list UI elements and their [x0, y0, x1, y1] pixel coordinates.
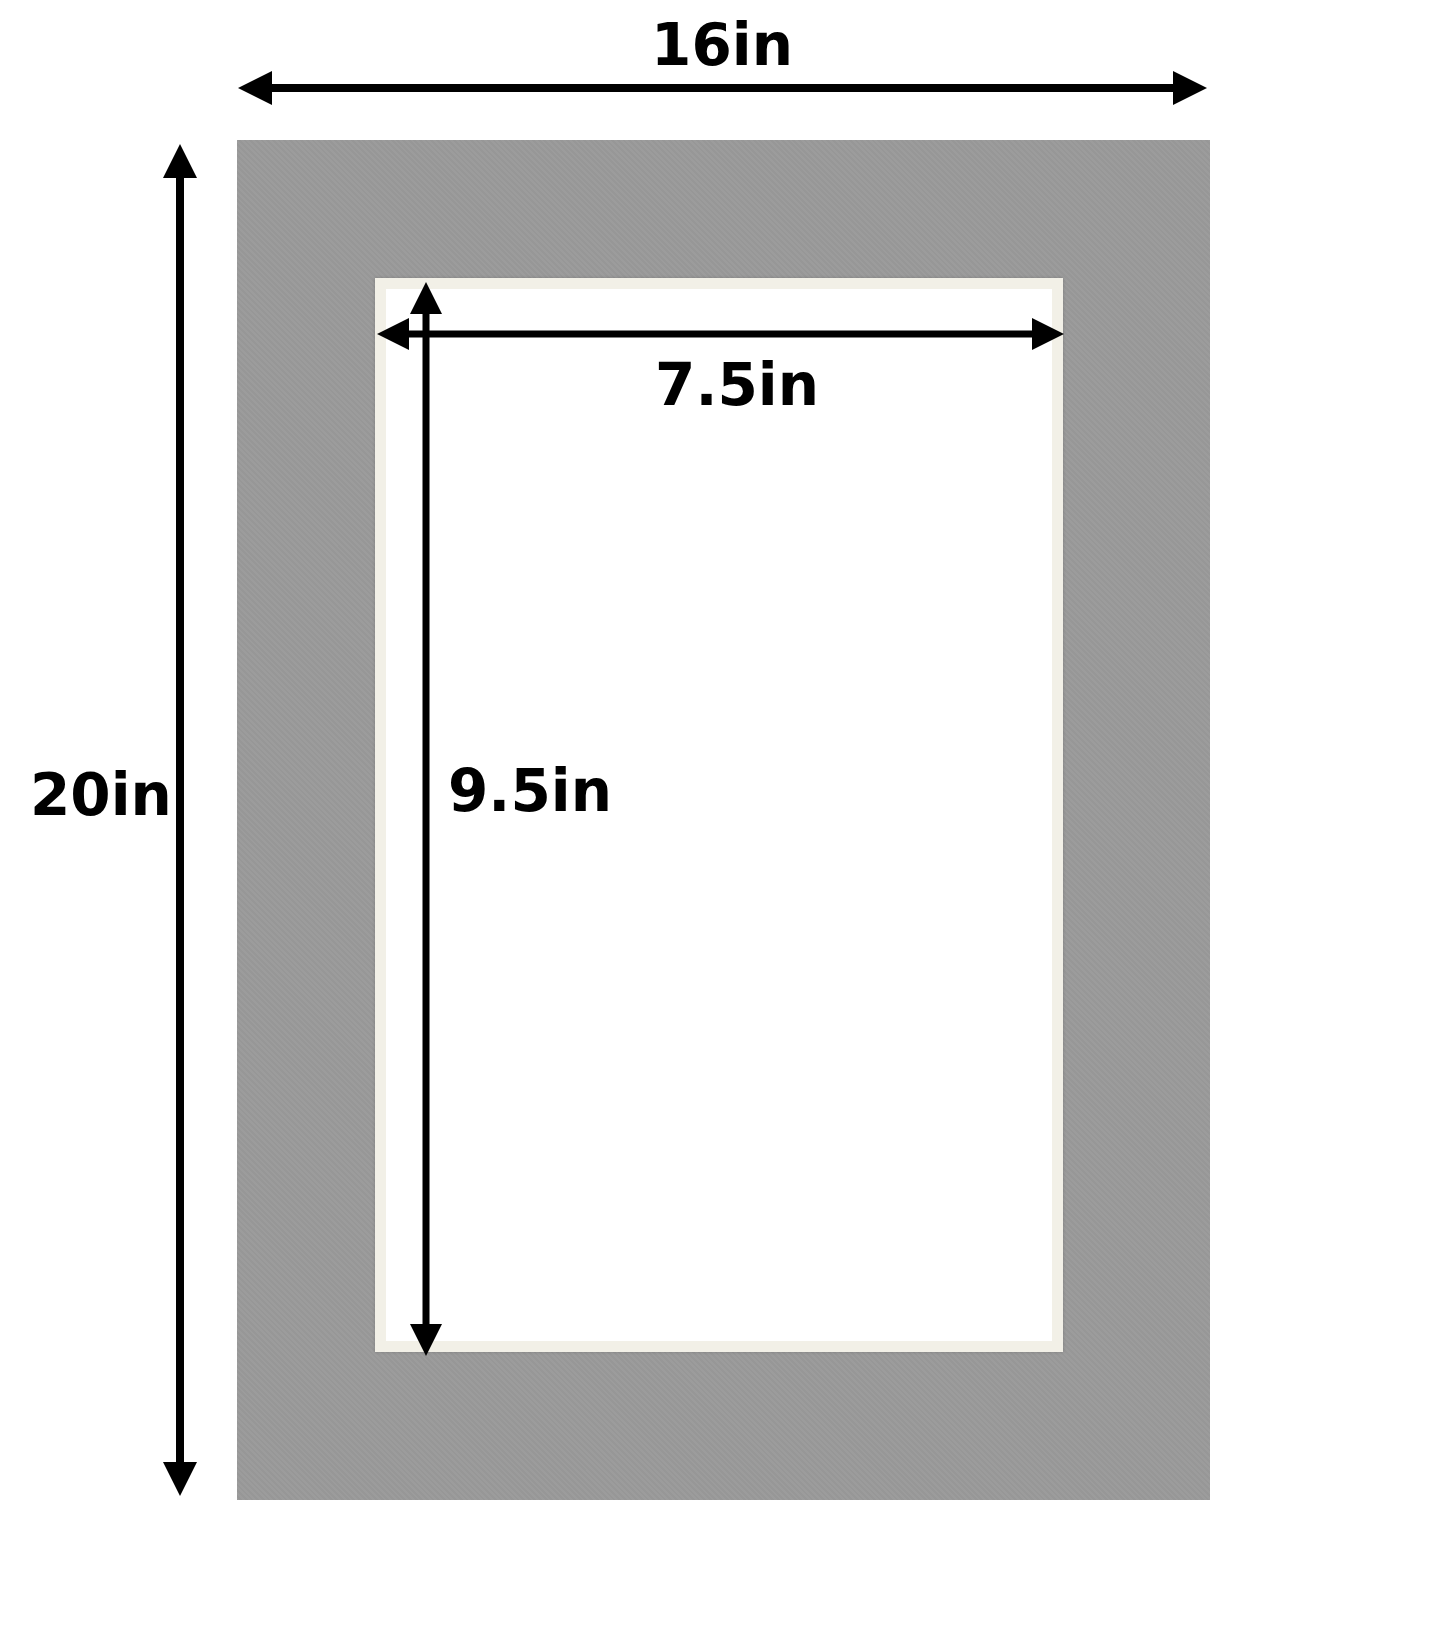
opening-width-dimension-arrow [377, 314, 1064, 354]
opening-width-label: 7.5in [637, 356, 837, 414]
opening-height-label: 9.5in [448, 762, 612, 820]
outer-height-label: 20in [30, 766, 162, 824]
mat-dimension-diagram: 16in 20in 7.5in 9.5in [0, 0, 1445, 1645]
outer-width-dimension-arrow [238, 68, 1207, 108]
outer-height-dimension-arrow [160, 144, 200, 1496]
outer-width-label: 16in [622, 16, 822, 74]
opening-height-dimension-arrow [406, 282, 446, 1356]
